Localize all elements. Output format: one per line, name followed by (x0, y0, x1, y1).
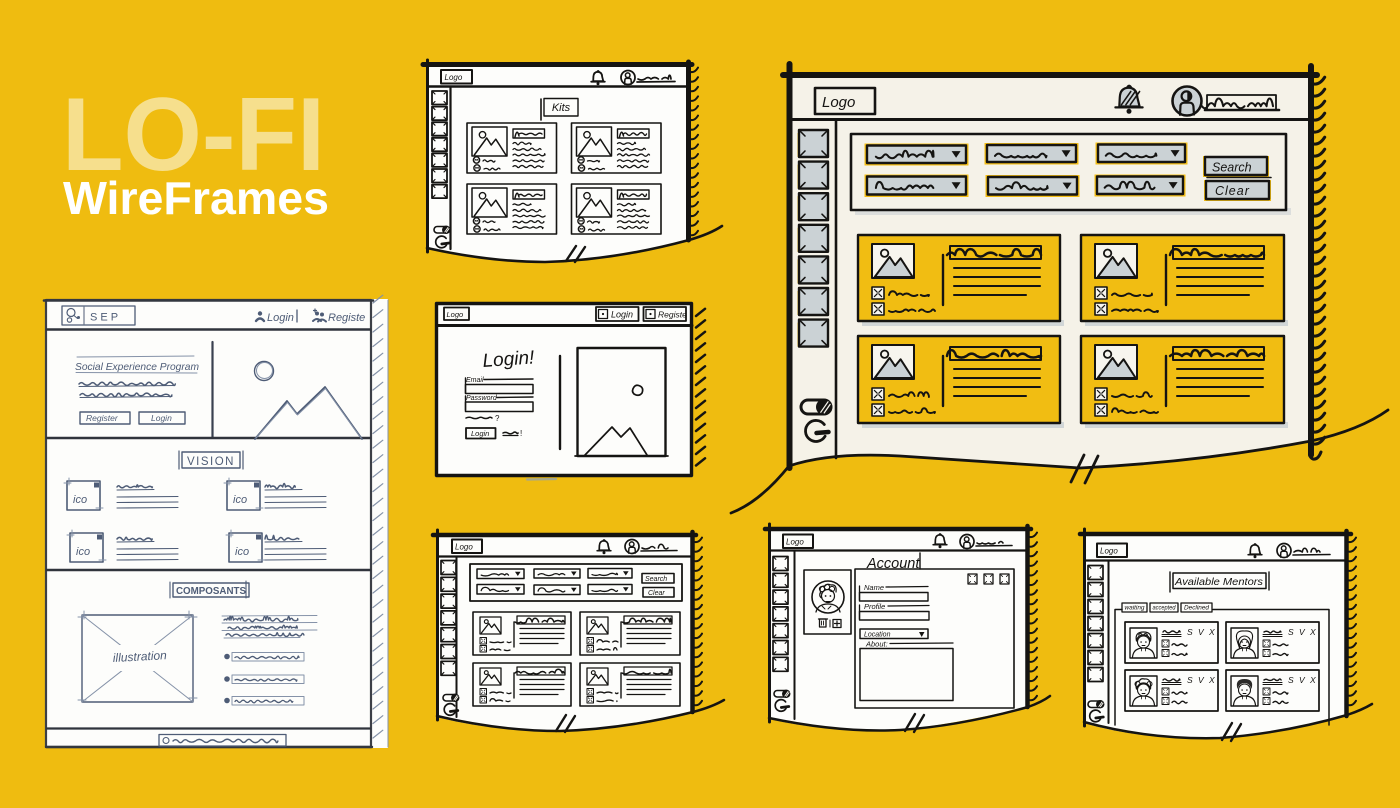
svg-text:Password: Password (466, 395, 498, 402)
svg-text:X: X (1309, 627, 1316, 637)
svg-text:waiting: waiting (1125, 606, 1146, 612)
svg-text:Registe: Registe (328, 312, 365, 324)
svg-text:Logo: Logo (822, 94, 855, 111)
svg-text:Login: Login (611, 310, 633, 320)
svg-text:Social Experience Program: Social Experience Program (75, 361, 199, 373)
svg-text:Name: Name (864, 583, 884, 592)
svg-text:ico: ico (233, 494, 247, 506)
svg-text:Clear: Clear (648, 590, 665, 597)
svg-text:S E P: S E P (90, 312, 118, 324)
svg-text:Register: Register (86, 413, 119, 423)
svg-text:About:: About: (865, 640, 888, 649)
svg-text:accepted: accepted (1153, 606, 1177, 612)
svg-text:Login!: Login! (482, 347, 536, 372)
svg-text:S: S (1187, 675, 1193, 685)
svg-text:Logo: Logo (786, 538, 804, 547)
svg-text:X: X (1309, 675, 1316, 685)
svg-text:VISION: VISION (187, 456, 235, 468)
svg-text:Location: Location (864, 632, 891, 639)
svg-text:Search: Search (1212, 161, 1252, 175)
svg-text:Logo: Logo (445, 73, 463, 82)
svg-text:Clear: Clear (1215, 184, 1250, 198)
svg-text:illustration: illustration (112, 648, 167, 665)
svg-text:COMPOSANTS: COMPOSANTS (176, 586, 246, 597)
svg-text:Logo: Logo (447, 310, 464, 319)
svg-text:S: S (1187, 627, 1193, 637)
svg-text:Kits: Kits (552, 102, 571, 114)
svg-text:Login: Login (471, 429, 489, 438)
svg-text:ico: ico (76, 546, 90, 558)
svg-text:X: X (1208, 675, 1215, 685)
svg-text:Registe: Registe (658, 310, 687, 320)
svg-text:WireFrames: WireFrames (63, 172, 329, 224)
svg-text:X: X (1208, 627, 1215, 637)
svg-text:Email: Email (466, 377, 484, 384)
svg-text:Login: Login (151, 413, 172, 423)
svg-text:?: ? (495, 414, 500, 423)
svg-text:Declined: Declined (1184, 605, 1209, 612)
svg-text:S: S (1288, 675, 1294, 685)
svg-text:ico: ico (73, 494, 87, 506)
svg-text:ico: ico (235, 546, 249, 558)
svg-text:Search: Search (645, 576, 667, 583)
svg-text:!: ! (520, 429, 522, 438)
svg-text:Profile: Profile (864, 602, 885, 611)
svg-text:S: S (1288, 627, 1294, 637)
svg-text:Logo: Logo (1100, 547, 1118, 556)
svg-text:Login: Login (267, 312, 294, 324)
svg-text:Logo: Logo (455, 543, 473, 552)
svg-text:Available Mentors: Available Mentors (1174, 576, 1264, 588)
